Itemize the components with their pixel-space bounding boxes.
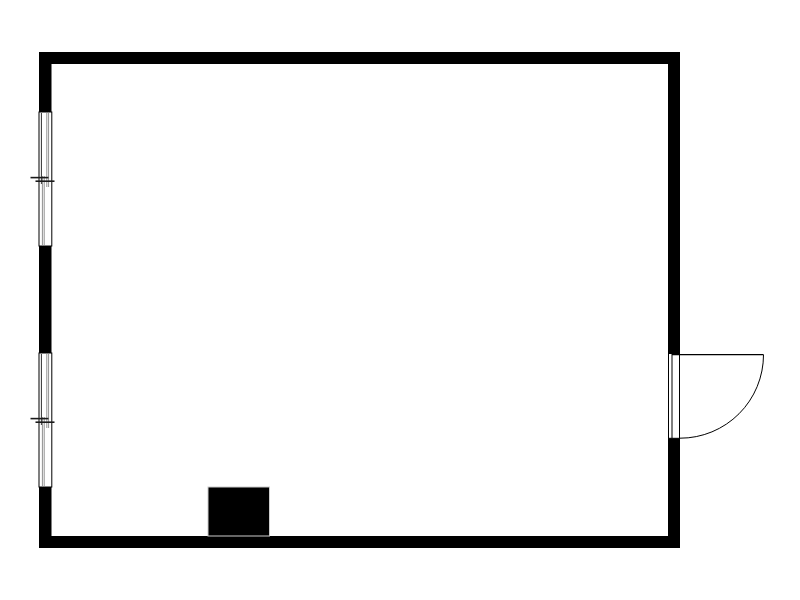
wall-top bbox=[39, 52, 680, 64]
wall-left-lower bbox=[39, 487, 52, 548]
fireplace-block bbox=[208, 487, 270, 536]
wall-bottom bbox=[39, 536, 680, 548]
door-swing-arc bbox=[680, 355, 764, 439]
floorplan-page bbox=[0, 0, 800, 600]
door-jamb bbox=[669, 354, 680, 439]
floorplan-svg bbox=[0, 0, 800, 600]
wall-right-lower bbox=[668, 438, 680, 548]
wall-right-upper bbox=[668, 52, 680, 354]
wall-left-middle bbox=[39, 246, 52, 353]
wall-left-upper bbox=[39, 52, 52, 112]
